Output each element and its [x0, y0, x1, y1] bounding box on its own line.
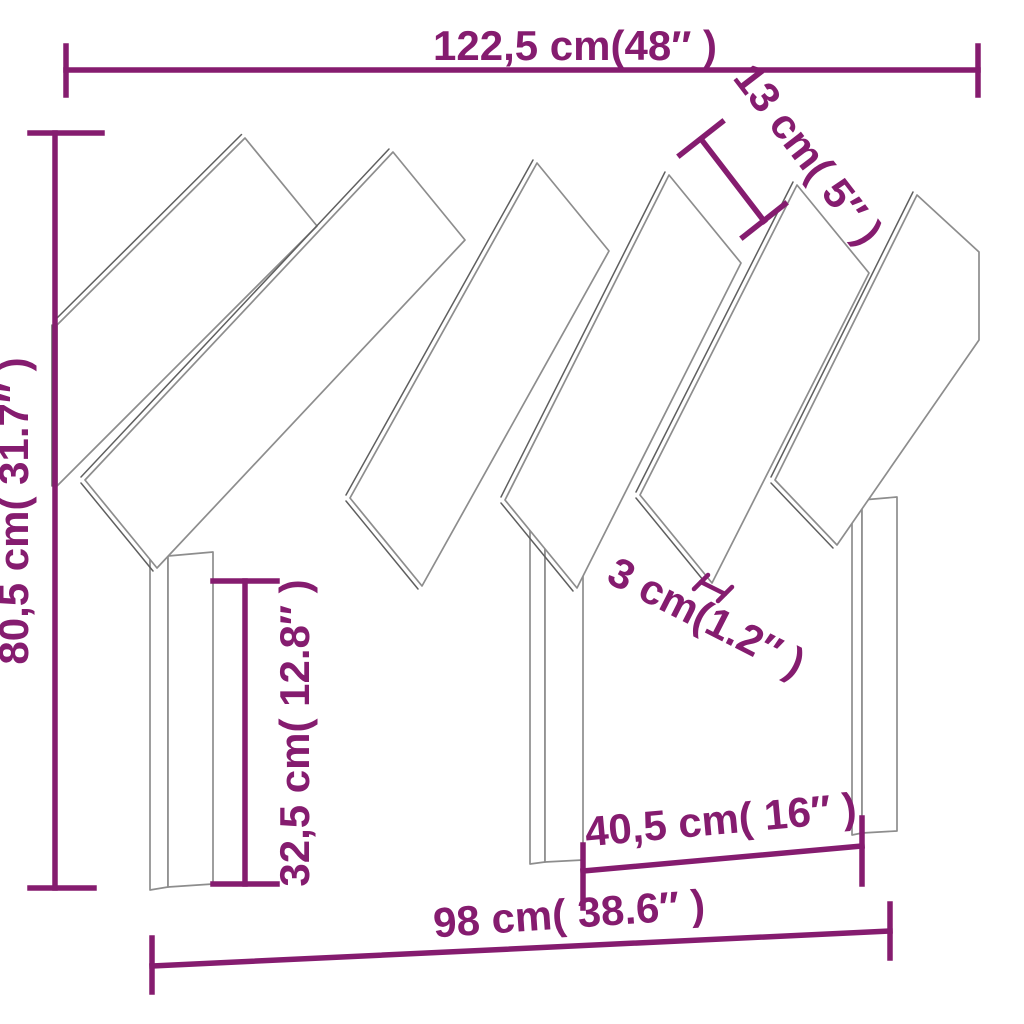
- dim-overall-height-label: 80,5 cm( 31.7″ ): [0, 357, 37, 664]
- headboard-dimension-diagram: 122,5 cm(48″ ) 13 cm( 5″ ) 80,5 cm( 31.7…: [0, 0, 1024, 1024]
- dim-overall-height: 80,5 cm( 31.7″ ): [0, 133, 102, 888]
- leg-left-side-face: [150, 556, 168, 890]
- leg-left-front-face: [168, 552, 213, 887]
- dim-overall-width: 122,5 cm(48″ ): [66, 22, 978, 95]
- leg-right-front-face: [862, 497, 897, 833]
- diagram-canvas: 122,5 cm(48″ ) 13 cm( 5″ ) 80,5 cm( 31.7…: [0, 0, 1024, 1024]
- dim-slat-width-tick-start: [680, 122, 722, 155]
- leg-middle-side-face: [530, 508, 545, 864]
- dim-leg-height-label: 32,5 cm( 12.8″ ): [271, 579, 318, 886]
- dim-inner-leg-span-label: 40,5 cm( 16″ ): [583, 784, 858, 855]
- dim-base-width: 98 cm( 38.6″ ): [152, 881, 890, 992]
- dim-slat-width-line: [701, 139, 764, 221]
- dim-leg-height: 32,5 cm( 12.8″ ): [213, 579, 318, 886]
- dim-base-width-label: 98 cm( 38.6″ ): [432, 881, 707, 947]
- dim-overall-width-label: 122,5 cm(48″ ): [433, 22, 717, 69]
